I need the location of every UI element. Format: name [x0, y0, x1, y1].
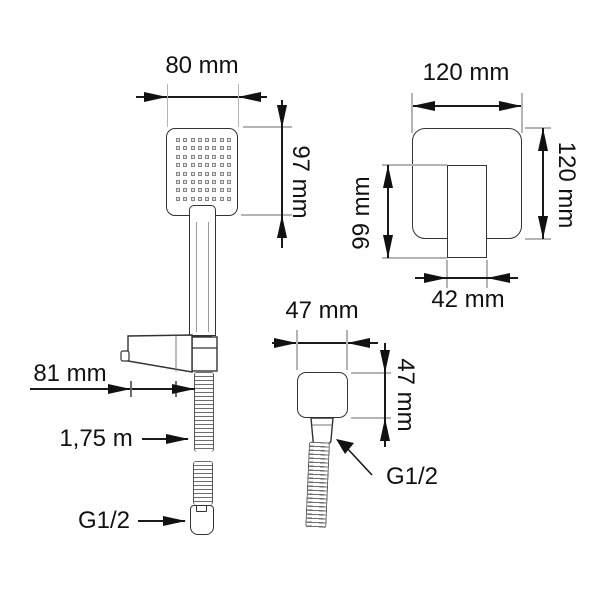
- mixer-handle-length-label: 99 mm: [347, 158, 377, 268]
- arrowhead-icon: [172, 384, 195, 394]
- outlet-width-label: 47 mm: [262, 296, 382, 326]
- extension-line: [521, 93, 523, 133]
- arrowhead-icon: [347, 338, 370, 348]
- arrowhead-icon: [274, 338, 297, 348]
- mixer-handle-width-label: 42 mm: [408, 285, 528, 315]
- outlet-hose-drawing: [305, 442, 330, 529]
- extension-line: [167, 84, 169, 127]
- handle-edge-line: [196, 222, 197, 332]
- hose-end-fitting-drawing: [190, 505, 214, 535]
- extension-line: [411, 93, 413, 133]
- bracket-depth-label: 81 mm: [24, 359, 116, 389]
- fitting-notch: [196, 505, 207, 512]
- shower-hose-lower: [193, 461, 213, 505]
- arrowhead-icon: [538, 128, 548, 151]
- arrowhead-icon: [380, 350, 390, 373]
- outlet-thread-label: G1/2: [379, 462, 445, 492]
- bracket-knob: [121, 351, 129, 361]
- arrowhead-icon: [538, 216, 548, 239]
- arrowhead-icon: [499, 101, 522, 111]
- mixer-handle-drawing: [447, 165, 487, 258]
- arrowhead-icon: [412, 101, 435, 111]
- nozzle-grid: [176, 138, 231, 201]
- arrowhead-icon: [108, 384, 131, 394]
- arrowhead-icon: [424, 273, 447, 283]
- shower-handle-drawing: [189, 205, 216, 336]
- hand-shower-height-label: 97 mm: [285, 122, 315, 242]
- hose-thread-label: G1/2: [72, 506, 136, 536]
- extension-line: [346, 330, 348, 370]
- mixer-height-label: 120 mm: [551, 125, 581, 245]
- arrowhead-icon: [144, 92, 167, 102]
- arrowhead-icon: [166, 434, 189, 444]
- arrowhead-icon: [487, 273, 510, 283]
- arrowhead-icon: [163, 516, 186, 526]
- arrowhead-icon: [383, 165, 393, 188]
- shower-hose-upper: [194, 372, 214, 452]
- mixer-width-label: 120 mm: [406, 58, 526, 88]
- hand-shower-width-label: 80 mm: [142, 51, 262, 81]
- hose-length-label: 1,75 m: [50, 424, 142, 454]
- handle-edge-line: [208, 222, 209, 332]
- extension-line: [238, 84, 240, 127]
- outlet-escutcheon-drawing: [297, 372, 348, 418]
- arrowhead-icon: [383, 235, 393, 258]
- extension-line: [296, 330, 298, 370]
- technical-drawing-canvas: 80 mm 97 mm: [0, 0, 600, 600]
- arrowhead-icon: [238, 92, 261, 102]
